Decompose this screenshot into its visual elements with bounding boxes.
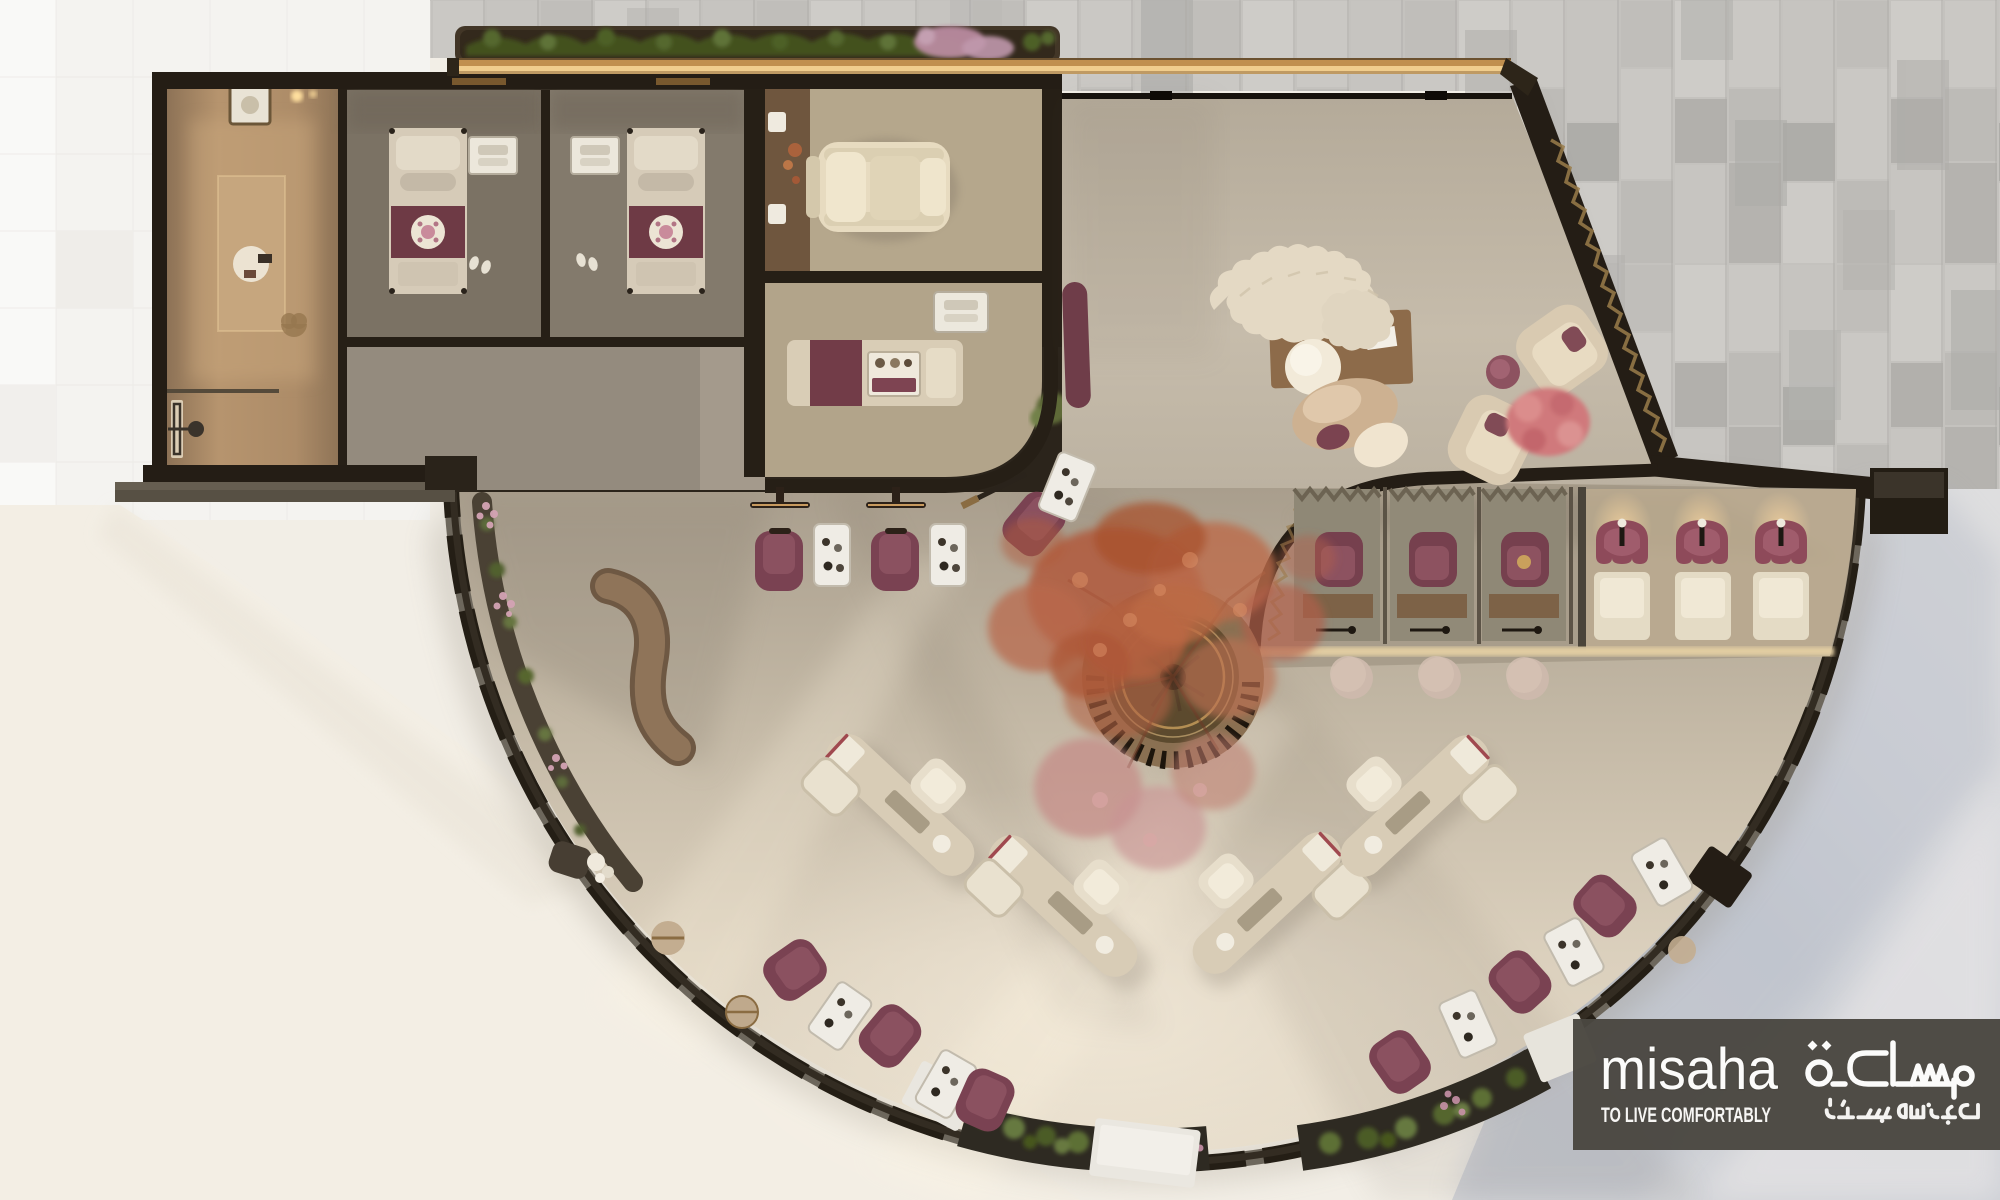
svg-text:TO LIVE COMFORTABLY: TO LIVE COMFORTABLY <box>1601 1104 1771 1127</box>
svg-text:misaha: misaha <box>1600 1037 1779 1102</box>
